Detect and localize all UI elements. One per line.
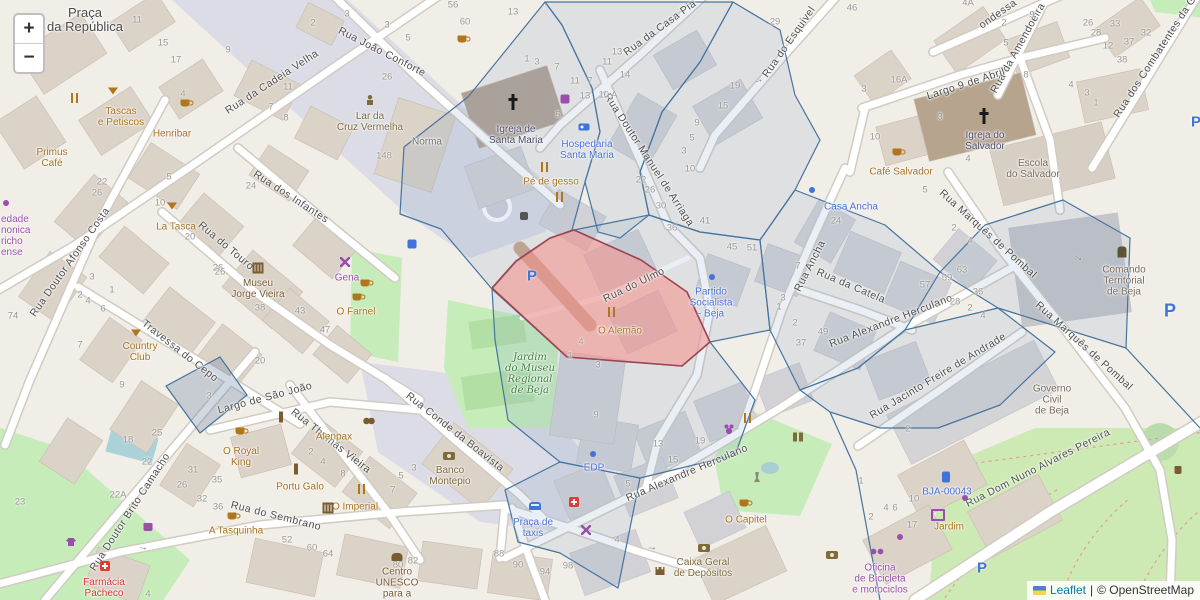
zoom-control: + − [13, 13, 45, 74]
leaflet-map[interactable]: Rua da Cadeia VelhaRua João ConforteRua … [0, 0, 1200, 600]
zoom-out-button[interactable]: − [15, 44, 43, 72]
attribution-separator: | [1090, 583, 1093, 597]
zoom-in-button[interactable]: + [15, 15, 43, 44]
osm-copyright: © OpenStreetMap [1097, 583, 1194, 597]
map-canvas [0, 0, 1200, 600]
ukraine-flag-icon [1033, 586, 1046, 595]
attribution-bar: Leaflet | © OpenStreetMap [1027, 581, 1200, 600]
leaflet-link[interactable]: Leaflet [1050, 583, 1086, 597]
